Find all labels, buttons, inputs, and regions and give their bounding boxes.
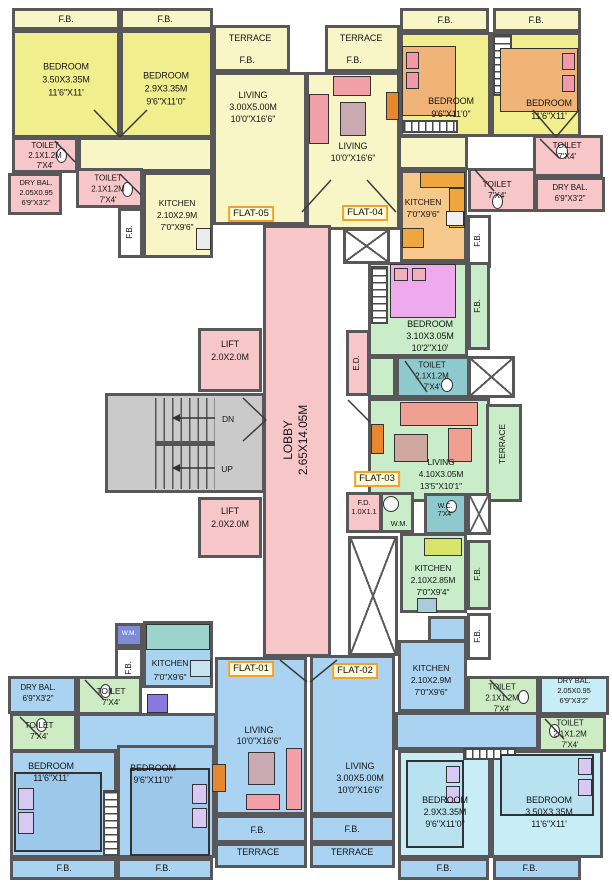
washing-machine-icon: [383, 496, 399, 512]
flat03-terrace-label: TERRACE: [496, 424, 508, 464]
pillow-icon: [192, 784, 207, 804]
stair-treads-upper: [155, 398, 215, 441]
flat02-terrace-label: TERRACE: [331, 846, 373, 858]
counter-icon: [420, 172, 465, 188]
ledge-hatch-flat01: [103, 790, 119, 856]
flat-02-tag: FLAT-02: [332, 663, 378, 679]
door-line: [348, 400, 370, 422]
flat02-bedroom-b-label: BEDROOM 3.50X3.35M 11'6"X11': [525, 794, 573, 830]
counter-icon: [402, 228, 424, 248]
flat05-bedroom-a-label: BEDROOM 3.50X3.35M 11'6"X11': [42, 61, 90, 100]
room-flat02-hall: [395, 712, 539, 750]
duct-flat03-wc: [467, 493, 491, 535]
pillow-icon: [406, 52, 419, 69]
flat04-bedroom-a-label: BEDROOM 9'6"X11'0": [428, 95, 474, 121]
flat-03-tag: FLAT-03: [354, 471, 400, 487]
lobby-label: LOBBY 2.65X14.05M: [281, 405, 311, 475]
flat-04-tag: FLAT-04: [342, 205, 388, 221]
flat04-fb-shaft-label: F.B.: [472, 233, 484, 246]
table-icon: [340, 102, 366, 136]
flat01-fb-b-label: F.B.: [155, 862, 170, 874]
floor-plan: F.B.F.B.BEDROOM 3.50X3.35M 11'6"X11'BEDR…: [0, 0, 612, 888]
pillow-icon: [578, 758, 592, 775]
tv-unit-icon: [386, 92, 399, 120]
flat05-bedroom-b-label: BEDROOM 2.9X3.35M 9'6"X11'0": [143, 70, 189, 109]
wc-pot-icon: [518, 690, 529, 704]
pillow-icon: [394, 268, 408, 281]
flat-01-tag: FLAT-01: [228, 661, 274, 677]
duct-flat03-toilet: [468, 356, 515, 398]
stove-icon: [417, 598, 437, 613]
flat01-terrace-label: TERRACE: [237, 846, 279, 858]
room-flat05-hall: [78, 137, 213, 172]
flat04-bedroom-b-label: BEDROOM 11'6"X11': [526, 97, 572, 123]
flat05-toilet-b-label: TOILET 2.1X1.2M 7'X4': [91, 173, 124, 206]
flat01-bedroom-a-label: BEDROOM 11'6"X11': [28, 760, 74, 784]
flat03-fd-label: F.D. 1.0X1.1: [351, 498, 376, 516]
sofa-icon: [333, 76, 371, 96]
flat03-living-label: LIVING 4.10X3.05M 13'5"X10'1": [419, 456, 464, 492]
flat01-toilet-a-label: TOILET 7'X4': [96, 686, 125, 708]
flat03-toilet-label: TOILET 2.1X1.2M 7'X4': [415, 360, 448, 393]
pillow-icon: [406, 72, 419, 89]
flat03-fb-strip-a-label: F.B.: [472, 299, 484, 312]
flat01-fb-bottom-label: F.B.: [250, 824, 265, 836]
flat04-terrace-fb-label: F.B.: [346, 54, 361, 66]
flat05-kitchen-label: KITCHEN 2.10X2.9M 7'0"X9'6": [157, 197, 197, 233]
flat02-fb-a-label: F.B.: [436, 862, 451, 874]
flat02-bedroom-a-label: BEDROOM 2.9X3.35M 9'6"X11'0": [422, 794, 468, 830]
lift-upper-label: LIFT 2.0X2.0M: [211, 338, 249, 364]
pillow-icon: [192, 808, 207, 828]
flat03-wm-label: W.M.: [391, 518, 408, 530]
sofa-icon: [309, 94, 329, 144]
duct-top: [343, 228, 390, 264]
flat02-living-label: LIVING 3.00X5.00M 10'0"X16'6": [336, 760, 384, 796]
room-flat02-entry: [428, 616, 467, 642]
flat05-living-label: LIVING 3.00X5.00M 10'0"X16'6": [229, 89, 277, 125]
pillow-icon: [412, 268, 426, 281]
flat01-living-label: LIVING 10'0"X16'6": [237, 725, 282, 747]
room-flat04-hall: [398, 135, 468, 170]
stairs-dn-label: DN: [222, 413, 234, 425]
stove-icon: [196, 228, 211, 250]
flat03-kitchen-label: KITCHEN 2.10X2.85M 7'0"X9'4": [411, 562, 456, 598]
sofa-icon: [246, 794, 280, 810]
lift-lower-label: LIFT 2.0X2.0M: [211, 505, 249, 531]
fridge-icon: [147, 694, 168, 713]
flat05-fb-a-label: F.B.: [58, 13, 73, 25]
stove-icon: [190, 660, 211, 677]
flat04-toilet-b-label: TOILET 7'X4': [552, 140, 581, 162]
tv-unit-icon: [212, 764, 226, 792]
flat05-toilet-a-label: TOILET 2.1X1.2M 7'X4': [28, 141, 61, 171]
flat02-dry-balcony-label: DRY BAL. 2.05X0.95 6'9"X3'2": [557, 676, 590, 706]
pillow-icon: [562, 53, 575, 70]
flat03-wc-label: W.C. 7'X4': [438, 503, 453, 519]
flat02-fb-bottom-label: F.B.: [344, 823, 359, 835]
sofa-icon: [400, 402, 478, 426]
flat01-wm-label: W.M.: [122, 628, 136, 640]
pillow-icon: [562, 75, 575, 92]
flat03-fb-strip-b-label: F.B.: [472, 567, 484, 580]
flat02-fb-shaft-label: F.B.: [472, 629, 484, 642]
pillow-icon: [18, 812, 34, 834]
flat01-fb-shaft-label: F.B.: [123, 661, 135, 674]
ledge-hatch-flat03: [371, 266, 388, 324]
stove-icon: [446, 211, 464, 226]
flat01-fb-a-label: F.B.: [56, 862, 71, 874]
flat04-terrace-label: TERRACE: [340, 32, 382, 44]
flat04-fb-a-label: F.B.: [437, 14, 452, 26]
flat05-terrace-label: TERRACE: [229, 32, 271, 44]
flat05-fb-shaft-label: F.B.: [124, 225, 136, 238]
flat04-living-label: LIVING 10'0"X16'6": [331, 140, 376, 164]
flat04-toilet-a-label: TOILET 7'X4': [482, 179, 511, 201]
flat05-terrace-fb-label: F.B.: [239, 54, 254, 66]
electrical-duct-label: E.D.: [351, 355, 363, 370]
flat01-toilet-b-label: TOILET 7'X4': [24, 720, 53, 742]
flat-05-tag: FLAT-05: [228, 206, 274, 222]
sink-icon: [424, 538, 462, 556]
flat01-bedroom-b-label: BEDROOM 9'6"X11'0": [130, 762, 176, 786]
pillow-icon: [578, 779, 592, 796]
flat02-toilet-b-label: TOILET 2.1X1.2M 7'X4': [553, 718, 586, 751]
stairs-up-label: UP: [221, 463, 233, 475]
pillow-icon: [18, 788, 34, 810]
room-flat03-passage: [368, 356, 396, 398]
stair-treads-lower: [155, 446, 215, 489]
flat04-kitchen-label: KITCHEN 7'0"X9'6": [405, 196, 442, 220]
duct-tall: [348, 536, 398, 656]
flat01-kitchen-label: KITCHEN 7'0"X9'6": [152, 656, 189, 684]
flat03-bedroom-label: BEDROOM 3.10X3.05M 10'2"X10': [406, 318, 454, 354]
flat02-toilet-a-label: TOILET 2.1X1.2M 7'X4': [485, 682, 518, 715]
table-icon: [248, 752, 275, 785]
flat04-fb-b-label: F.B.: [528, 14, 543, 26]
tv-unit-icon: [371, 424, 384, 454]
flat02-kitchen-label: KITCHEN 2.10X2.9M 7'0"X9'6": [411, 662, 451, 698]
flat05-dry-balcony-label: DRY BAL. 2.05X0.95 6'9"X3'2": [19, 178, 52, 208]
flat05-fb-b-label: F.B.: [157, 13, 172, 25]
counter-icon: [146, 624, 210, 650]
ledge-hatch-flat04: [402, 120, 458, 133]
sofa-icon: [286, 748, 302, 810]
flat01-dry-balcony-label: DRY BAL. 6'9"X3'2": [20, 682, 55, 704]
flat02-fb-b-label: F.B.: [522, 862, 537, 874]
pillow-icon: [446, 766, 460, 783]
flat04-dry-balcony-label: DRY BAL. 6'9"X3'2": [552, 182, 587, 204]
